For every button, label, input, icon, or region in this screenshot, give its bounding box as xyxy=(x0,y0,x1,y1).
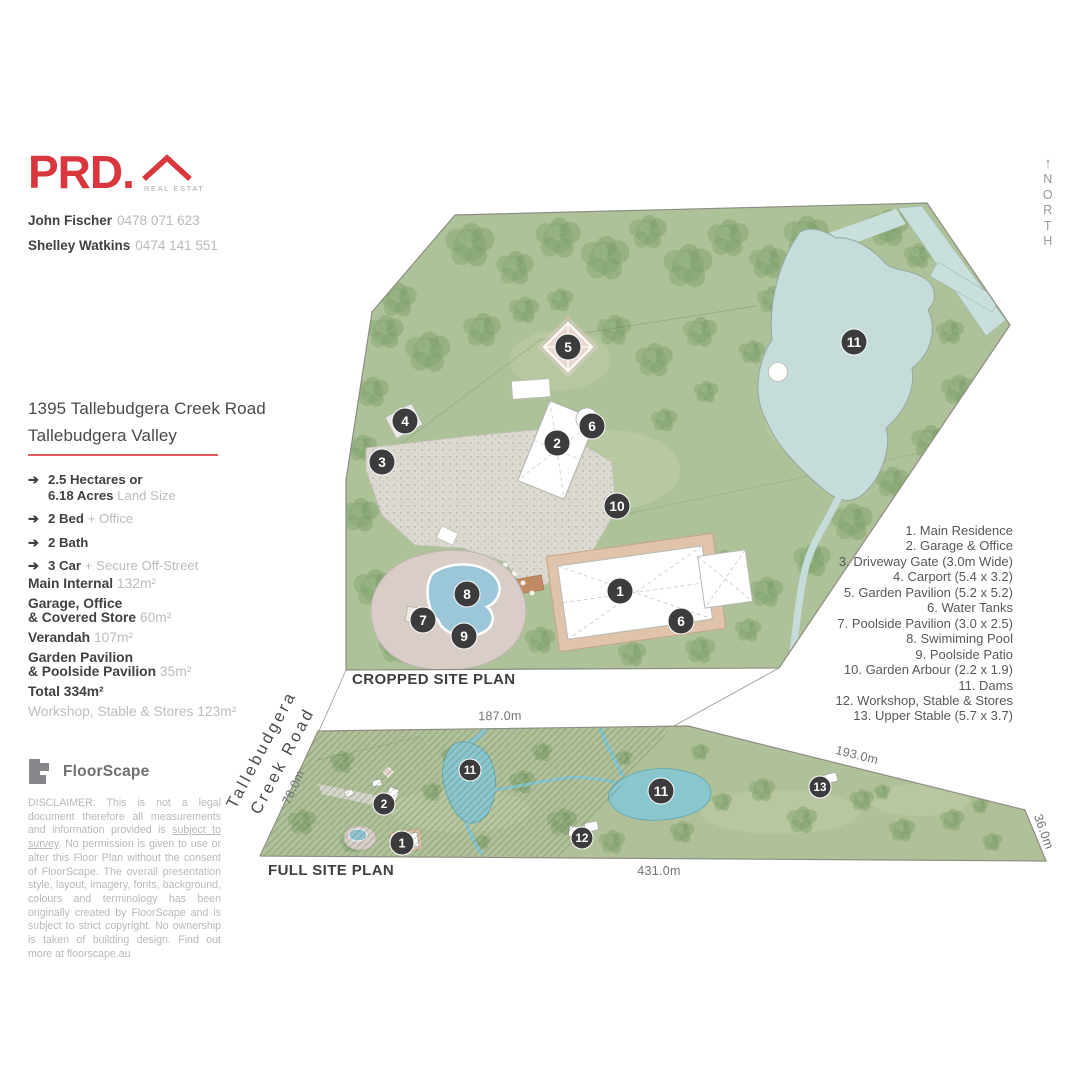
map-marker: 6 xyxy=(579,413,605,439)
feature-row: ➔2.5 Hectares or6.18 Acres Land Size xyxy=(28,472,198,503)
marker-number: 1 xyxy=(398,837,405,851)
area-row: Total 334m² xyxy=(28,685,236,699)
feature-row: ➔2 Bath xyxy=(28,535,198,551)
marker-number: 8 xyxy=(463,587,471,602)
marker-number: 1 xyxy=(616,584,624,599)
legend-item: 4. Carport (5.4 x 3.2) xyxy=(835,569,1013,584)
area-row: Verandah 107m² xyxy=(28,631,236,645)
legend-item: 2. Garage & Office xyxy=(835,538,1013,553)
agent-contacts: John Fischer0478 071 623 Shelley Watkins… xyxy=(28,208,218,258)
north-indicator: ↑ N O R T H xyxy=(1036,156,1060,250)
arrow-icon: ➔ xyxy=(28,558,48,574)
legend-item: 6. Water Tanks xyxy=(835,600,1013,615)
marker-number: 5 xyxy=(564,340,572,355)
feature-list: ➔2.5 Hectares or6.18 Acres Land Size➔2 B… xyxy=(28,472,198,582)
arrow-icon: ➔ xyxy=(28,535,48,551)
marker-number: 7 xyxy=(419,613,427,628)
prd-logo: PRD. REAL ESTATE xyxy=(28,148,203,205)
marker-number: 12 xyxy=(576,832,589,845)
legend-item: 11. Dams xyxy=(835,678,1013,693)
map-marker: 11 xyxy=(459,759,481,781)
legend-item: 8. Swimiming Pool xyxy=(835,631,1013,646)
marker-number: 9 xyxy=(460,629,468,644)
legend-item: 9. Poolside Patio xyxy=(835,647,1013,662)
property-address: 1395 Tallebudgera Creek Road Tallebudger… xyxy=(28,395,266,449)
marker-number: 11 xyxy=(847,335,862,350)
full-site-plan: 1211111213 xyxy=(260,726,1046,861)
measurement-label: 187.0m xyxy=(478,709,522,723)
arrow-icon: ➔ xyxy=(28,511,48,527)
map-marker: 5 xyxy=(555,334,581,360)
map-marker: 8 xyxy=(454,581,480,607)
map-marker: 1 xyxy=(390,831,414,855)
water-tank-shape xyxy=(769,363,788,382)
arrow-icon: ➔ xyxy=(28,472,48,503)
floorscape-brand: FloorScape xyxy=(28,758,149,785)
area-row: Garden Pavilion& Poolside Pavilion 35m² xyxy=(28,651,236,679)
marker-number: 10 xyxy=(609,499,625,514)
north-label: N O R T H xyxy=(1036,172,1060,250)
legend-item: 10. Garden Arbour (2.2 x 1.9) xyxy=(835,662,1013,677)
map-marker: 2 xyxy=(544,430,570,456)
legend-item: 7. Poolside Pavilion (3.0 x 2.5) xyxy=(835,616,1013,631)
floorscape-icon xyxy=(28,758,51,785)
legend-item: 13. Upper Stable (5.7 x 3.7) xyxy=(835,708,1013,723)
map-marker: 10 xyxy=(604,493,630,519)
map-marker: 12 xyxy=(571,827,593,849)
cropped-plan-title: CROPPED SITE PLAN xyxy=(352,671,516,688)
map-marker: 9 xyxy=(451,623,477,649)
agent-row: John Fischer0478 071 623 xyxy=(28,208,218,233)
roof-icon xyxy=(144,158,190,179)
prd-tagline: REAL ESTATE xyxy=(144,184,203,193)
map-marker: 4 xyxy=(392,408,418,434)
agent-row: Shelley Watkins0474 141 551 xyxy=(28,233,218,258)
map-marker: 7 xyxy=(410,607,436,633)
map-marker: 11 xyxy=(648,778,674,804)
north-arrow-icon: ↑ xyxy=(1036,156,1060,171)
prd-logo-text: PRD. xyxy=(28,148,134,198)
measurement-label: 431.0m xyxy=(637,864,681,878)
area-row: Workshop, Stable & Stores 123m² xyxy=(28,705,236,719)
legend-item: 12. Workshop, Stable & Stores xyxy=(835,693,1013,708)
shed-roof xyxy=(511,379,550,400)
marker-number: 6 xyxy=(677,614,685,629)
map-marker: 1 xyxy=(607,578,633,604)
area-list: Main Internal 132m²Garage, Office& Cover… xyxy=(28,577,236,725)
connector-line xyxy=(672,668,779,727)
marker-number: 2 xyxy=(381,798,387,811)
connector-line xyxy=(319,670,346,731)
legend-item: 5. Garden Pavilion (5.2 x 5.2) xyxy=(835,585,1013,600)
marker-number: 2 xyxy=(553,436,561,451)
area-row: Main Internal 132m² xyxy=(28,577,236,591)
marker-number: 4 xyxy=(401,414,409,429)
marker-number: 13 xyxy=(814,781,827,794)
feature-row: ➔2 Bed + Office xyxy=(28,511,198,527)
legend-item: 1. Main Residence xyxy=(835,523,1013,538)
floorscape-name: FloorScape xyxy=(63,763,149,781)
map-marker: 11 xyxy=(841,329,867,355)
marker-number: 11 xyxy=(464,764,477,777)
map-marker: 3 xyxy=(369,449,395,475)
marker-number: 11 xyxy=(654,784,669,799)
divider xyxy=(28,454,218,456)
map-marker: 6 xyxy=(668,608,694,634)
legend-item: 3. Driveway Gate (3.0m Wide) xyxy=(835,554,1013,569)
plan-legend: 1. Main Residence2. Garage & Office3. Dr… xyxy=(835,523,1013,724)
marker-number: 6 xyxy=(588,419,596,434)
map-marker: 2 xyxy=(373,793,395,815)
marker-number: 3 xyxy=(378,455,386,470)
feature-row: ➔3 Car + Secure Off-Street xyxy=(28,558,198,574)
map-marker: 13 xyxy=(809,776,831,798)
full-plan-title: FULL SITE PLAN xyxy=(268,862,394,879)
area-row: Garage, Office& Covered Store 60m² xyxy=(28,597,236,625)
disclaimer-text: DISCLAIMER: This is not a legal document… xyxy=(28,797,221,961)
